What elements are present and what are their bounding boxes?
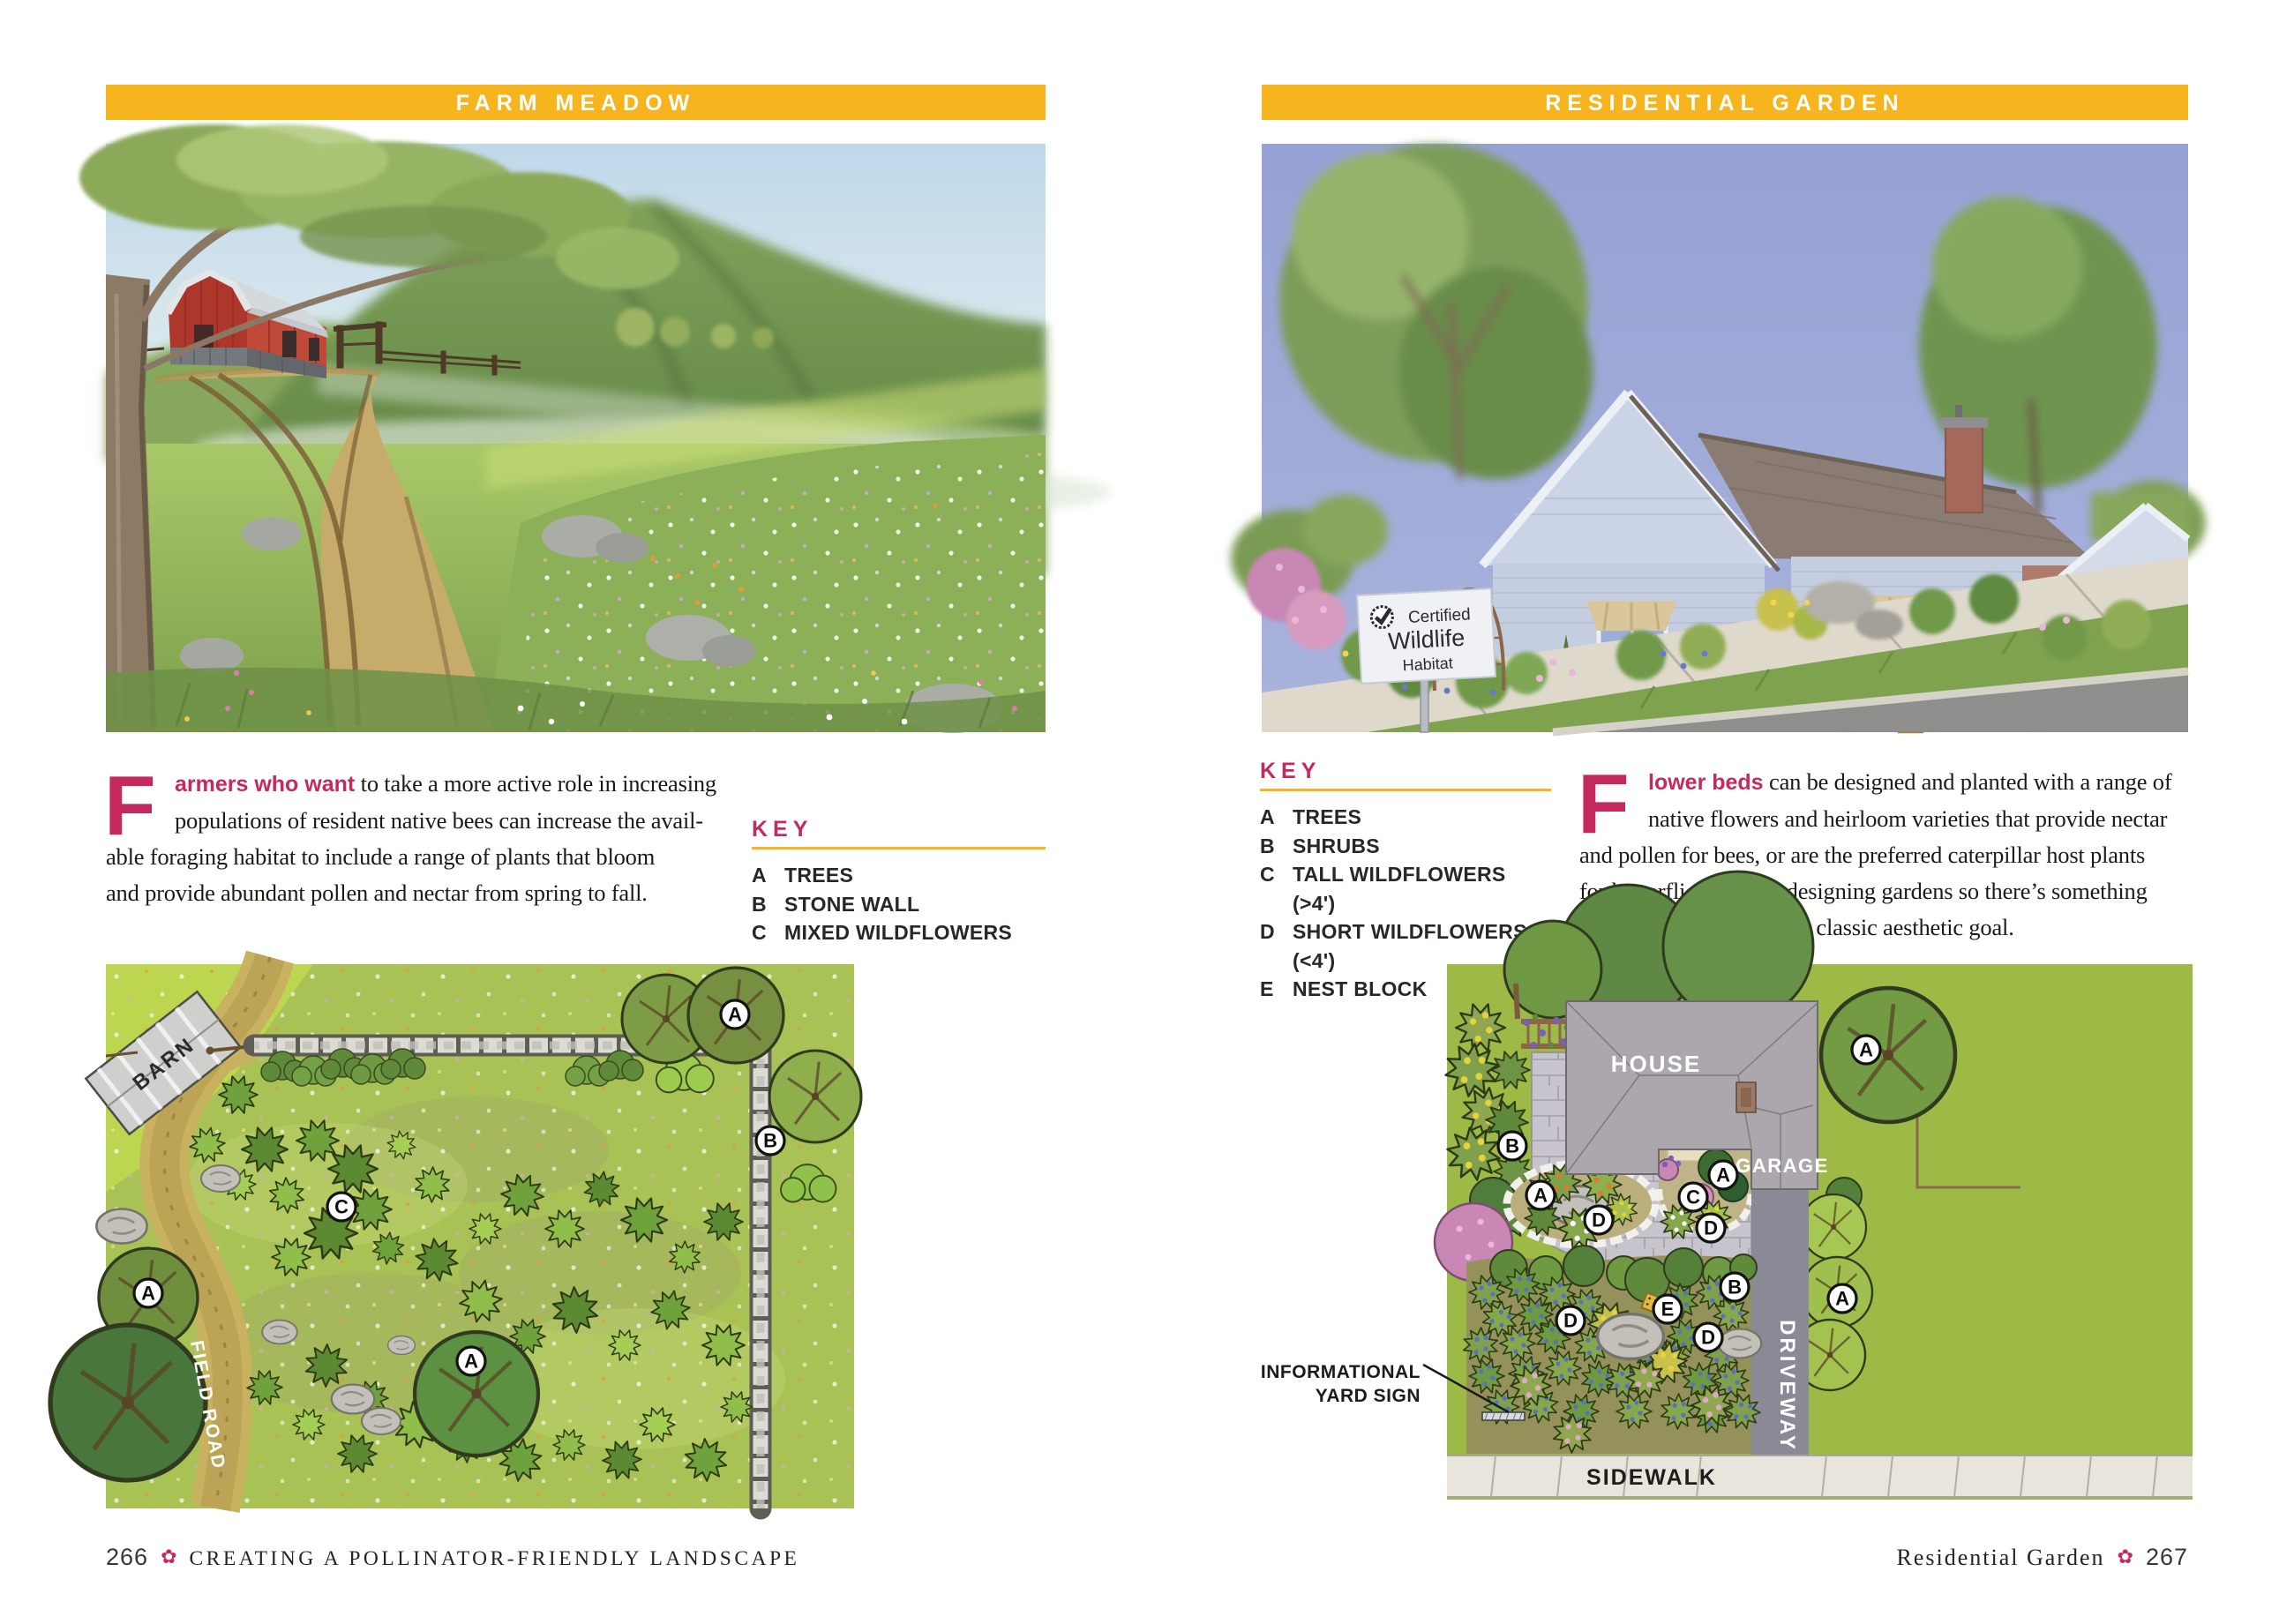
key-item-mixed-wildflowers: CMIXED WILDFLOWERS [752, 918, 1046, 947]
svg-text:B: B [1728, 1276, 1742, 1298]
svg-text:D: D [1701, 1327, 1715, 1349]
svg-text:B: B [763, 1130, 777, 1152]
plan-marker-b: B [1498, 1132, 1526, 1160]
right-section-header: RESIDENTIAL GARDEN [1262, 85, 2188, 120]
key-item-trees: ATREES [752, 861, 1046, 890]
residential-garden-illustration: Certified Wildlife Habitat [1262, 144, 2188, 732]
flower-icon: ✿ [2118, 1545, 2133, 1568]
left-page-footer: 266 ✿ CREATING A POLLINATOR-FRIENDLY LAN… [106, 1544, 799, 1571]
plan-marker-d: D [1694, 1323, 1722, 1351]
plan-marker-a: A [1709, 1161, 1737, 1189]
svg-text:GARAGE: GARAGE [1735, 1155, 1829, 1177]
key-item-tall-wildflowers: CTALL WILDFLOWERS (>4') [1260, 860, 1551, 917]
svg-text:A: A [464, 1351, 478, 1373]
plan-marker-b: B [1720, 1273, 1749, 1301]
svg-text:A: A [1716, 1164, 1730, 1186]
drop-cap: F [104, 766, 155, 847]
drop-cap: F [1578, 764, 1629, 845]
paragraph-line: and pollen for bees, or are the preferre… [1579, 837, 2206, 873]
farm-meadow-paragraph: F armers who want to take a more active … [106, 766, 750, 911]
informational-yard-sign-annotation: INFORMATIONAL YARD SIGN [1233, 1360, 1421, 1408]
plan-marker-d: D [1585, 1206, 1613, 1234]
right-page-footer: Residential Garden ✿ 267 [1897, 1544, 2189, 1571]
farm-meadow-illustration [106, 144, 1046, 732]
key-item-shrubs: BSHRUBS [1260, 832, 1551, 861]
left-section-header: FARM MEADOW [106, 85, 1046, 120]
plan-marker-d: D [1556, 1306, 1585, 1335]
sign-line-3: Habitat [1402, 654, 1453, 674]
page-number: 267 [2146, 1544, 2188, 1571]
svg-text:A: A [141, 1283, 155, 1305]
chapter-title: Residential Garden [1897, 1545, 2105, 1571]
sidewalk-plan: SIDEWALK [1447, 1456, 2193, 1497]
plan-marker-a: A [457, 1347, 485, 1375]
svg-text:C: C [334, 1196, 349, 1218]
plan-marker-e: E [1653, 1295, 1682, 1323]
svg-text:D: D [1592, 1209, 1606, 1231]
sign-line-2: Wildlife [1387, 625, 1465, 655]
paragraph-line: populations of resident native bees can … [106, 803, 750, 839]
driveway-label: DRIVEWAY [1775, 1320, 1799, 1452]
farm-plan-illustration: BARN [106, 964, 854, 1508]
plan-marker-a: A [1828, 1284, 1856, 1313]
plan-marker-a: A [134, 1279, 162, 1307]
residential-plan-illustration: DRIVEWAY [1447, 964, 2193, 1500]
book-title: CREATING A POLLINATOR-FRIENDLY LANDSCAPE [190, 1547, 800, 1571]
key-item-stone-wall: BSTONE WALL [752, 890, 1046, 919]
plan-marker-a: A [721, 1000, 749, 1029]
svg-text:HOUSE: HOUSE [1611, 1051, 1701, 1077]
svg-text:A: A [1835, 1288, 1849, 1310]
plan-marker-a: A [1852, 1036, 1880, 1064]
svg-text:D: D [1704, 1217, 1718, 1239]
svg-text:D: D [1563, 1310, 1578, 1332]
svg-text:A: A [1533, 1185, 1548, 1207]
plan-marker-c: C [1679, 1183, 1707, 1211]
book-spread: FARM MEADOW [0, 0, 2294, 1624]
page-number: 266 [106, 1544, 148, 1571]
sidewalk-label: SIDEWALK [1586, 1465, 1717, 1490]
svg-text:B: B [1505, 1135, 1519, 1157]
paragraph-line: native flowers and heirloom varieties th… [1579, 801, 2206, 837]
paragraph-line: armers who want to take a more active ro… [106, 766, 750, 803]
plan-marker-d: D [1697, 1214, 1725, 1242]
flower-icon: ✿ [161, 1545, 176, 1568]
front-meadow-bed [1423, 1246, 1767, 1457]
svg-text:E: E [1661, 1298, 1675, 1321]
key-title: KEY [1260, 759, 1551, 791]
svg-text:C: C [1686, 1186, 1700, 1209]
paragraph-line: able foraging habitat to include a range… [106, 839, 750, 875]
plan-marker-c: C [327, 1193, 356, 1221]
plan-marker-a: A [1526, 1181, 1555, 1209]
svg-text:A: A [1859, 1039, 1873, 1061]
farm-meadow-key: KEY ATREES BSTONE WALL CMIXED WILDFLOWER… [752, 817, 1046, 947]
paragraph-line: lower beds can be designed and planted w… [1579, 764, 2206, 801]
yard-sign-plan [1482, 1412, 1525, 1420]
plan-marker-b: B [756, 1126, 784, 1155]
key-item-trees: ATREES [1260, 803, 1551, 832]
svg-text:A: A [728, 1004, 742, 1026]
key-title: KEY [752, 817, 1046, 849]
paragraph-line: and provide abundant pollen and nectar f… [106, 875, 750, 911]
